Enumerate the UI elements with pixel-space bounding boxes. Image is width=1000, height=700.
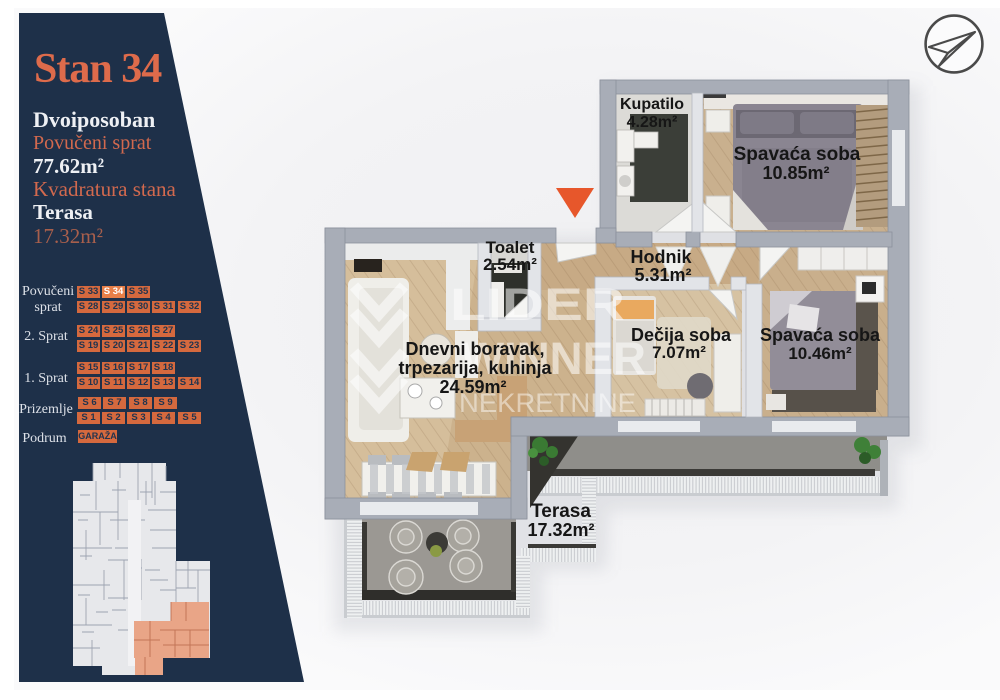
svg-text:17.32m²: 17.32m² — [527, 520, 594, 540]
svg-text:Hodnik: Hodnik — [631, 247, 693, 267]
svg-text:Terasa: Terasa — [531, 501, 591, 522]
svg-text:10.85m²: 10.85m² — [762, 163, 829, 183]
svg-text:24.59m²: 24.59m² — [439, 377, 506, 397]
svg-text:Kupatilo: Kupatilo — [620, 96, 684, 113]
svg-text:5.31m²: 5.31m² — [634, 265, 691, 285]
svg-text:7.07m²: 7.07m² — [652, 343, 706, 362]
svg-text:Spavaća soba: Spavaća soba — [734, 144, 861, 165]
svg-text:2.54m²: 2.54m² — [483, 255, 537, 274]
svg-text:trpezarija, kuhinja: trpezarija, kuhinja — [398, 358, 552, 378]
svg-text:10.46m²: 10.46m² — [788, 344, 852, 363]
svg-text:4.28m²: 4.28m² — [627, 114, 678, 131]
svg-text:Dečija soba: Dečija soba — [631, 325, 732, 345]
svg-text:Spavaća soba: Spavaća soba — [760, 325, 881, 345]
svg-text:Dnevni boravak,: Dnevni boravak, — [405, 339, 544, 359]
svg-text:LIDER: LIDER — [450, 279, 625, 330]
